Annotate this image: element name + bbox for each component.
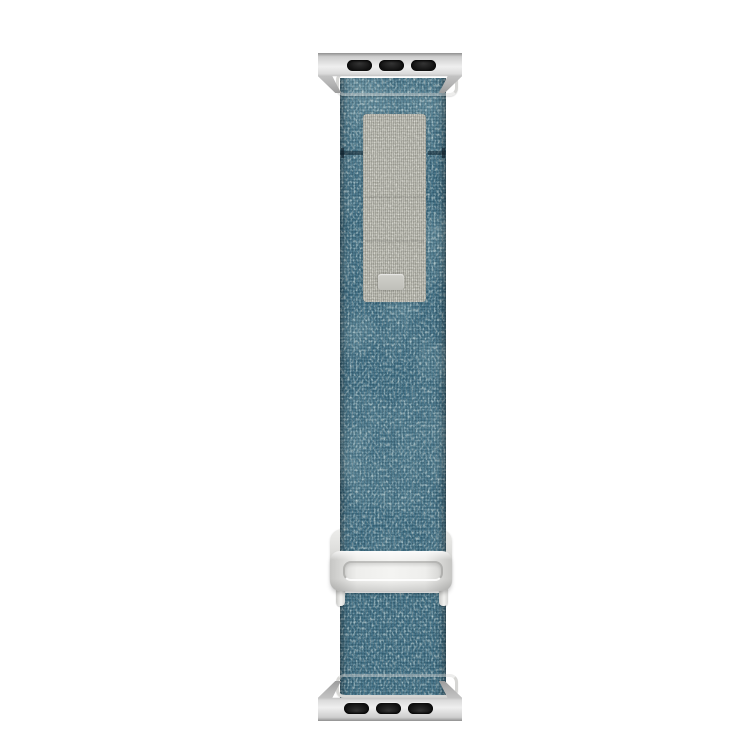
buckle-post-right [439, 589, 448, 606]
loop-panel-fold-line [365, 196, 424, 198]
lug-slot-icon [411, 60, 436, 71]
lug-slot-icon [408, 703, 433, 714]
lug-slot-icon [376, 703, 401, 714]
buckle-slot [343, 561, 443, 581]
buckle [330, 551, 452, 591]
lug-slot-icon [344, 703, 369, 714]
hook-loop-panel [363, 114, 426, 302]
product-photo [0, 0, 750, 750]
seam-edge-tick-right [442, 148, 445, 158]
seam-edge-tick-left [341, 148, 344, 158]
lug-slot-icon [379, 60, 404, 71]
bottom-clamp [336, 674, 458, 698]
loop-panel-fold-line [365, 240, 424, 242]
buckle-post-left [336, 589, 345, 606]
lug-slot-icon [347, 60, 372, 71]
loop-panel-tab [378, 274, 404, 290]
upper-strap [340, 78, 446, 555]
